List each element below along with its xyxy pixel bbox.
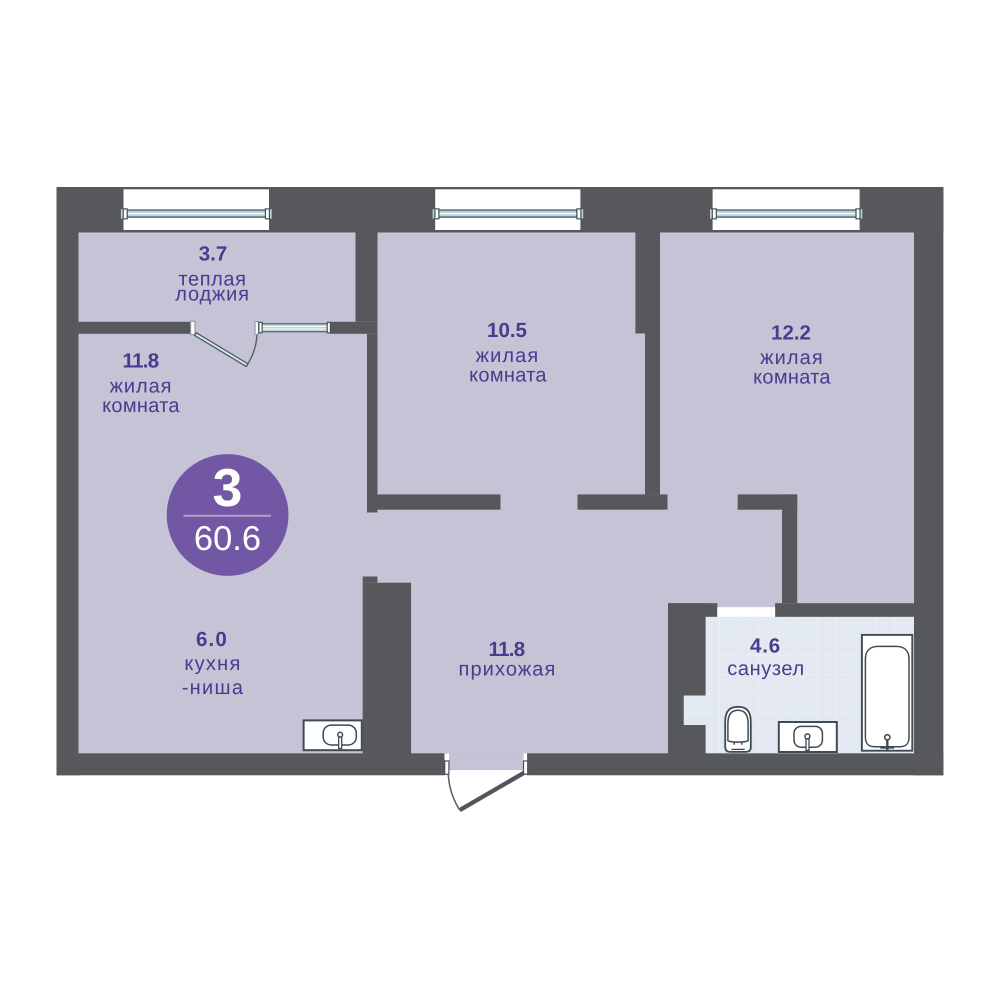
svg-text:комната: комната [102,395,180,417]
svg-text:-ниша: -ниша [182,677,245,699]
svg-text:кухня: кухня [184,653,241,675]
svg-text:6.0: 6.0 [196,628,228,651]
svg-text:прихожая: прихожая [459,659,557,681]
svg-text:комната: комната [753,367,831,389]
svg-text:60.6: 60.6 [194,520,261,558]
svg-text:12.2: 12.2 [771,322,811,345]
svg-text:4.6: 4.6 [750,635,781,658]
svg-text:3: 3 [213,459,243,518]
svg-text:лоджия: лоджия [175,284,249,306]
svg-text:комната: комната [469,365,547,387]
svg-text:11.8: 11.8 [123,350,159,373]
svg-text:10.5: 10.5 [487,319,527,342]
svg-text:санузел: санузел [727,658,804,680]
svg-text:3.7: 3.7 [199,243,228,266]
